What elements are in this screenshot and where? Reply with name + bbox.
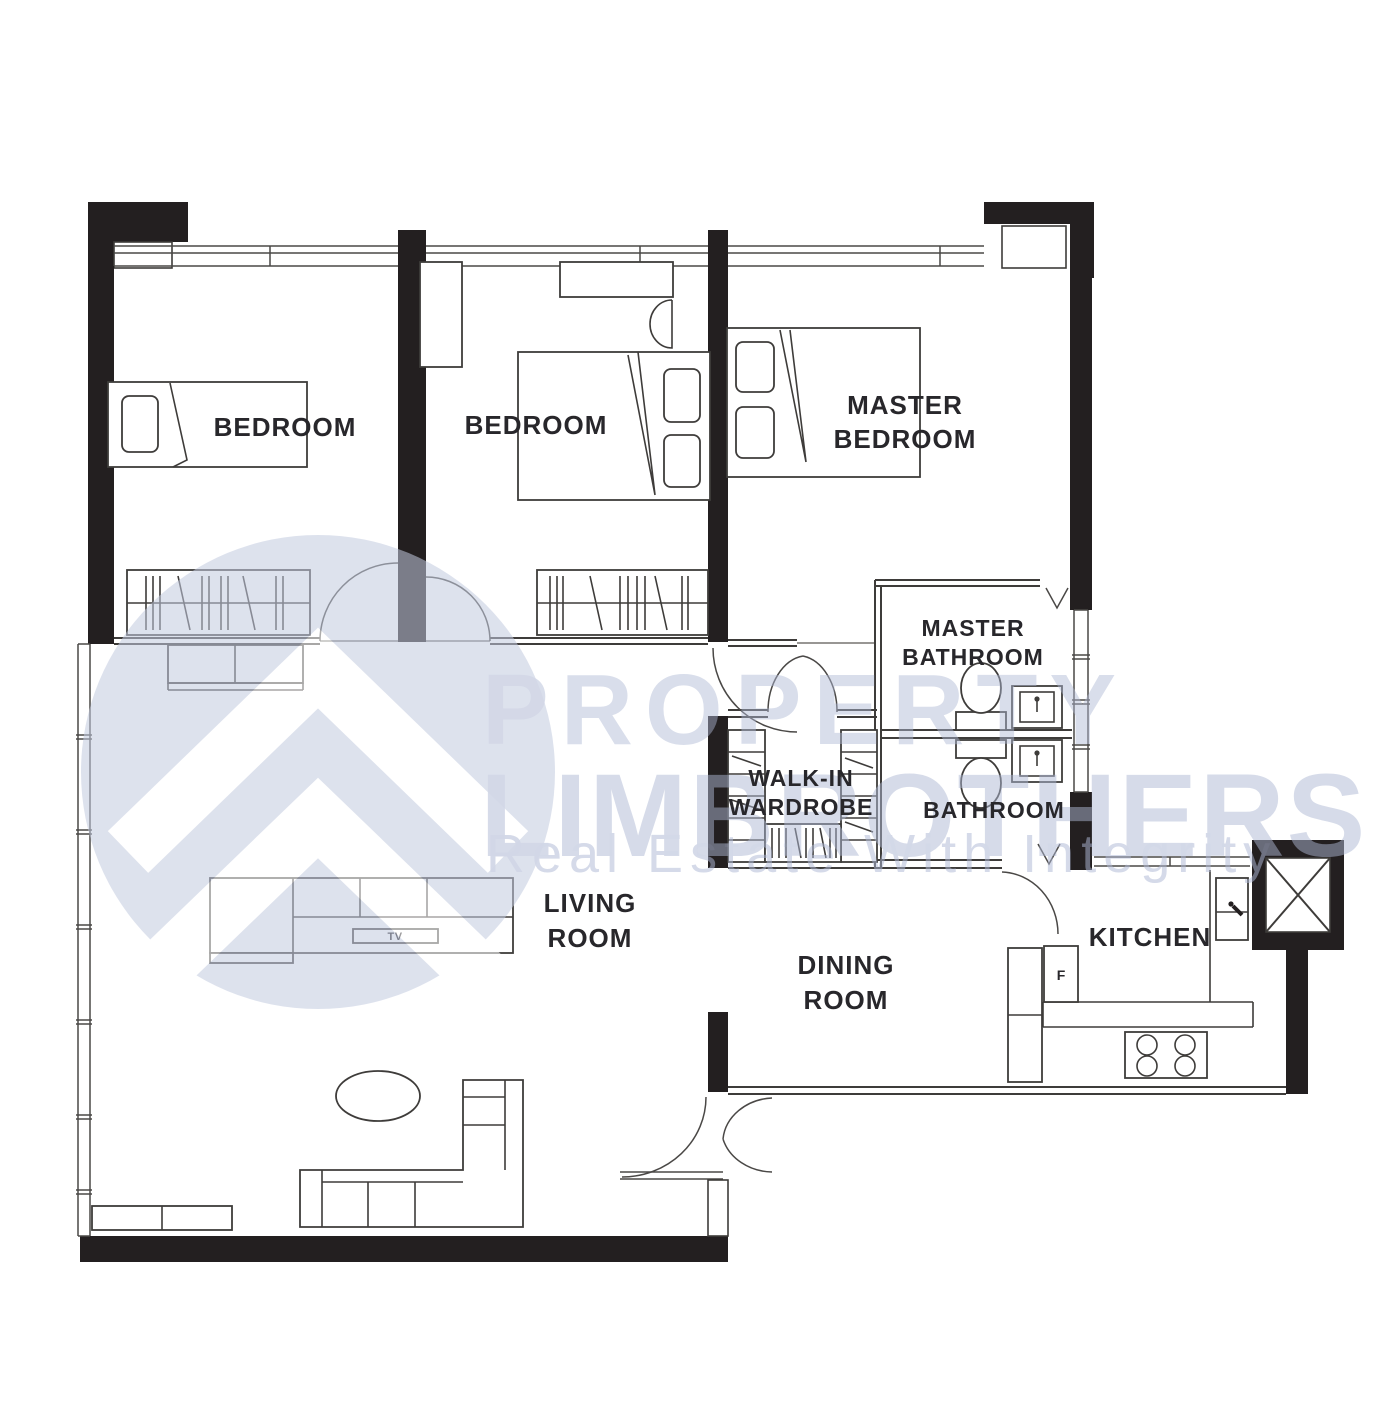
desk-chair	[650, 300, 672, 348]
label-master-bedroom-2: BEDROOM	[834, 424, 977, 454]
coffee-table	[336, 1071, 420, 1121]
wall-bottom	[80, 1236, 728, 1262]
partition-bedroom2-south	[490, 638, 708, 644]
partition-hall-north	[728, 640, 797, 646]
vent-v-icon-master-bath	[1046, 588, 1068, 608]
label-dining-room-1: DINING	[798, 950, 895, 980]
label-living-room-2: ROOM	[548, 923, 633, 953]
label-dining-room-2: ROOM	[804, 985, 889, 1015]
wall-pier-top-left-v	[88, 202, 114, 270]
kitchen: F	[1008, 870, 1253, 1082]
label-master-bedroom-1: MASTER	[847, 390, 963, 420]
label-living-room-1: LIVING	[544, 888, 637, 918]
bed-pillow-1	[664, 369, 700, 422]
bed-pillow-2	[736, 407, 774, 458]
entrance-door-leaf-small	[723, 1098, 772, 1172]
entrance-door-leaf-main	[622, 1097, 706, 1177]
floor-plan-page: TV F PROPERTY LIMBROTHERS Real Estate Wi…	[0, 0, 1400, 1414]
wall-kitchen-right	[1286, 948, 1308, 1094]
sink-tap-dot	[1228, 901, 1233, 906]
partition-master-bath-north	[875, 580, 1040, 586]
stove	[1125, 1032, 1207, 1078]
desk	[560, 262, 673, 297]
label-master-bathroom-2: BATHROOM	[902, 644, 1044, 670]
bedroom-2	[420, 262, 710, 635]
watermark-tagline: Real Estate With Integrity	[486, 824, 1277, 884]
window-top-master	[728, 246, 984, 266]
label-walk-in-wardrobe-1: WALK-IN	[748, 765, 853, 791]
entrance-wall-stub	[708, 1180, 728, 1236]
wall-inset-top-right	[1002, 226, 1066, 268]
label-kitchen: KITCHEN	[1089, 922, 1212, 952]
tall-cabinet	[420, 262, 462, 367]
wall-master-right	[1070, 274, 1092, 610]
bed-pillow-2	[664, 435, 700, 487]
wall-pier-top-right-v	[1070, 202, 1094, 278]
label-bedroom-2: BEDROOM	[465, 410, 608, 440]
partition-dining-south	[728, 1087, 1286, 1094]
label-bathroom: BATHROOM	[923, 797, 1065, 823]
wall-dining-pier	[708, 1012, 728, 1092]
label-bedroom-1: BEDROOM	[214, 412, 357, 442]
fridge-label: F	[1057, 967, 1066, 983]
bed-pillow	[122, 396, 158, 452]
kitchen-sink	[1216, 878, 1248, 940]
wall-bedroom2-master	[708, 230, 728, 642]
label-walk-in-wardrobe-2: WARDROBE	[729, 794, 874, 820]
bed-pillow-1	[736, 342, 774, 392]
floor-plan-canvas: TV F PROPERTY LIMBROTHERS Real Estate Wi…	[0, 0, 1400, 1414]
label-master-bathroom-1: MASTER	[921, 615, 1024, 641]
